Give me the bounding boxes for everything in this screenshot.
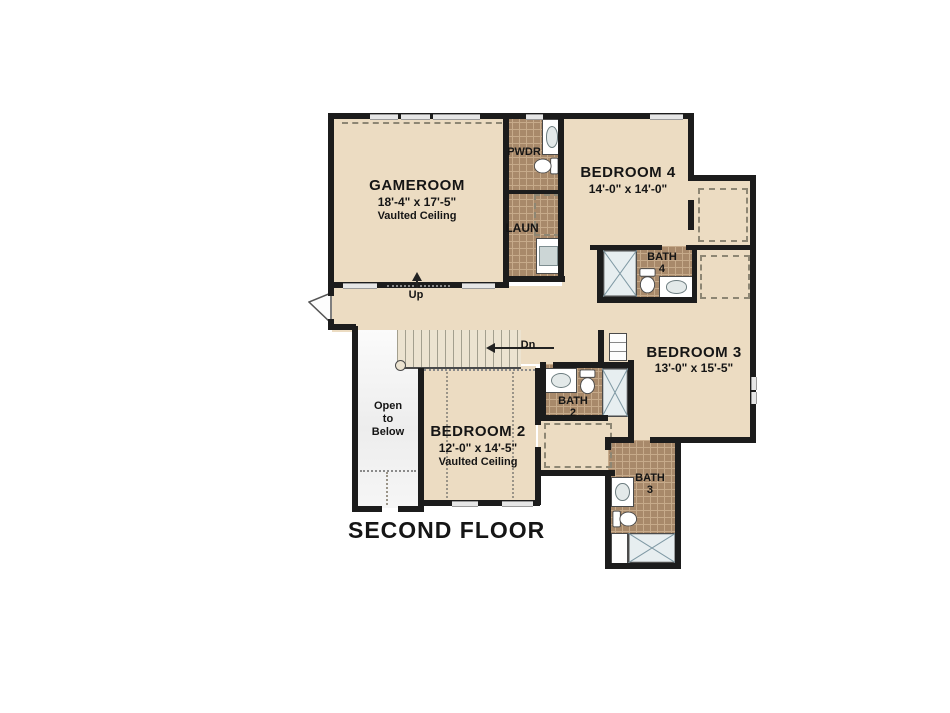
bath4-label: BATH 4 xyxy=(647,252,677,275)
pwdr-label: PWDR xyxy=(507,147,541,159)
floor-plan: Dn Up xyxy=(0,0,950,713)
down-label: Dn xyxy=(521,340,536,352)
bath3-shower xyxy=(628,533,676,563)
bath2-label: BATH 2 xyxy=(558,396,588,419)
wall xyxy=(597,297,697,303)
bath2-number: 2 xyxy=(570,407,576,419)
wall xyxy=(535,470,615,476)
wall xyxy=(328,288,334,296)
open-below-dash-h xyxy=(360,470,416,472)
window xyxy=(751,392,757,404)
bath2-shower xyxy=(602,368,628,417)
laun-label: LAUN xyxy=(505,222,538,235)
wall xyxy=(503,276,565,282)
window xyxy=(401,114,430,120)
wall xyxy=(398,506,424,512)
toilet-icon xyxy=(612,508,638,530)
window xyxy=(343,283,377,289)
open-below-dash-v xyxy=(386,472,388,505)
window xyxy=(650,114,683,120)
bedroom4-label: BEDROOM 4 xyxy=(580,165,675,181)
bath2-name: BATH xyxy=(558,395,588,407)
open-below-line2: to xyxy=(383,413,393,425)
bedroom2-ceiling: Vaulted Ceiling xyxy=(439,457,518,469)
hall-closet-dashed xyxy=(700,255,750,299)
gameroom-label: GAMEROOM xyxy=(369,178,465,194)
bath4-sink xyxy=(659,276,694,298)
open-below-label: Open to Below xyxy=(372,400,404,440)
shower-x-icon xyxy=(602,368,628,417)
wall xyxy=(688,175,756,181)
wall xyxy=(352,326,358,512)
sink-basin-icon xyxy=(546,126,559,148)
gameroom-ceiling-line xyxy=(342,122,502,124)
down-arrow-head xyxy=(486,343,495,353)
stair-newel xyxy=(395,360,406,371)
window xyxy=(370,114,398,120)
stair-opening-sill xyxy=(387,285,450,287)
wall xyxy=(605,470,611,569)
bath3-label: BATH 3 xyxy=(635,473,665,496)
linen-shelves xyxy=(609,333,627,361)
window xyxy=(452,501,478,507)
bedroom4-closet-dashed xyxy=(698,188,748,242)
gameroom-dims: 18'-4" x 17'-5" xyxy=(378,196,456,209)
up-arrow-head xyxy=(412,272,422,281)
window xyxy=(751,377,757,390)
wall xyxy=(605,563,681,569)
open-below-line3: Below xyxy=(372,426,404,438)
bath4-name: BATH xyxy=(647,251,677,263)
bath3-sink xyxy=(611,477,634,507)
wall xyxy=(535,447,541,505)
wall xyxy=(328,113,334,288)
window xyxy=(502,501,533,507)
bedroom4-entry-floor xyxy=(562,248,600,288)
sink-basin-icon xyxy=(615,483,630,501)
toilet-icon xyxy=(578,369,597,395)
gameroom-ceiling: Vaulted Ceiling xyxy=(378,211,457,223)
shower-x-icon xyxy=(603,250,637,297)
wall xyxy=(605,440,611,450)
bedroom2-open-edge xyxy=(424,369,535,371)
bath2-sink xyxy=(545,368,577,393)
wall xyxy=(598,330,604,368)
bath3-name: BATH xyxy=(635,472,665,484)
bedroom2-label: BEDROOM 2 xyxy=(430,424,525,440)
bath4-shower xyxy=(603,250,637,297)
washer-icon xyxy=(539,246,557,267)
wall xyxy=(675,437,756,443)
hall-floor xyxy=(332,286,632,332)
wall xyxy=(553,362,634,368)
bedroom2-dims: 12'-0" x 14'-5" xyxy=(439,442,517,455)
wall xyxy=(597,248,603,303)
sink-basin-icon xyxy=(551,373,571,388)
wall xyxy=(692,250,697,303)
open-below-line1: Open xyxy=(374,400,402,412)
wall xyxy=(540,362,546,421)
bath3-number: 3 xyxy=(647,484,653,496)
wall xyxy=(418,368,424,505)
plan-title: SECOND FLOOR xyxy=(348,517,545,544)
bath3-shower-step xyxy=(611,533,628,564)
up-label: Up xyxy=(409,290,424,302)
window xyxy=(526,114,543,120)
wall xyxy=(352,506,382,512)
bath2-toilet xyxy=(578,369,597,395)
wall xyxy=(628,360,634,443)
bedroom3-label: BEDROOM 3 xyxy=(646,345,741,361)
window xyxy=(462,283,495,289)
bedroom2-closet-dashed xyxy=(544,423,612,468)
wall xyxy=(505,190,560,194)
bath3-toilet xyxy=(612,508,638,530)
bedroom3-dims: 13'-0" x 15'-5" xyxy=(655,362,733,375)
shower-x-icon xyxy=(628,533,676,563)
wall xyxy=(688,113,694,181)
sink-basin-icon xyxy=(666,280,688,294)
staircase-down xyxy=(397,330,521,369)
window xyxy=(433,114,480,120)
wall xyxy=(558,113,564,282)
wall xyxy=(688,200,694,230)
wall xyxy=(503,113,509,288)
bedroom4-dims: 14'-0" x 14'-0" xyxy=(589,183,667,196)
wall xyxy=(675,437,681,569)
bath4-number: 4 xyxy=(659,263,665,275)
